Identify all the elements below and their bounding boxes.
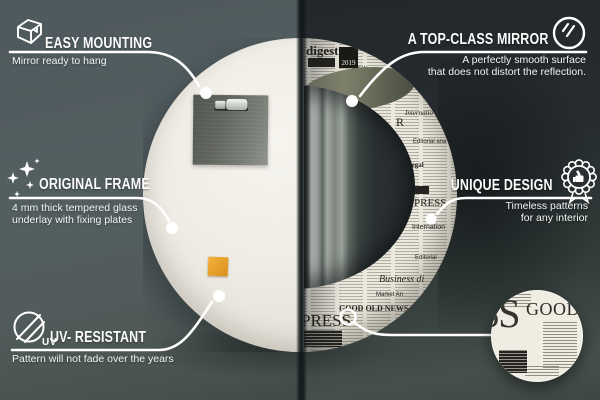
top-class-subtitle-line1: A perfectly smooth surface (428, 55, 586, 67)
original-frame-dot (166, 222, 178, 234)
easy-mounting-subtitle: Mirror ready to hang (12, 56, 107, 68)
top-class-subtitle-line2: that does not distort the reflection. (428, 67, 586, 79)
mirror-shine-icon (551, 15, 587, 51)
unique-design-subtitle: Timeless patterns for any interior (506, 201, 588, 224)
detail-text-lines (543, 322, 577, 368)
uv-resistant-subtitle: Pattern will not fade over the years (12, 354, 174, 366)
unique-design-subtitle-line1: Timeless patterns (506, 201, 588, 213)
detail-word-press: SS (491, 294, 519, 334)
original-frame-subtitle-line1: 4 mm thick tempered glass (12, 203, 137, 215)
top-class-dot (346, 95, 358, 107)
detail-ink-block (499, 350, 527, 373)
award-badge-icon (560, 158, 598, 204)
detail-text-lines (525, 366, 559, 378)
top-class-mirror-subtitle: A perfectly smooth surface that does not… (428, 55, 586, 78)
box-icon (10, 14, 46, 50)
uv-resistant-dot (213, 290, 225, 302)
unique-design-title: UNIQUE DESIGN (451, 178, 553, 194)
pattern-detail-circle: SS GOOD (491, 290, 583, 382)
sparkles-icon (4, 156, 44, 204)
detail-zoom-ring (341, 310, 356, 325)
top-class-mirror-title: A TOP-CLASS MIRROR (407, 32, 548, 48)
uv-icon-label: UV (42, 337, 57, 348)
detail-zoom-line (355, 323, 491, 335)
uv-resistant-title: UV- RESISTANT (50, 330, 146, 346)
original-frame-subtitle: 4 mm thick tempered glass underlay with … (12, 203, 137, 226)
easy-mounting-title: EASY MOUNTING (45, 36, 152, 52)
mirror-product-infographic: digestNEWSarticleInternatioREditorial an… (0, 0, 600, 400)
unique-design-subtitle-line2: for any interior (506, 213, 588, 225)
easy-mounting-dot (200, 87, 212, 99)
original-frame-subtitle-line2: underlay with fixing plates (12, 215, 137, 227)
detail-word-good: GOOD (526, 300, 580, 318)
unique-design-dot (426, 214, 437, 225)
original-frame-title: ORIGINAL FRAME (39, 177, 150, 193)
